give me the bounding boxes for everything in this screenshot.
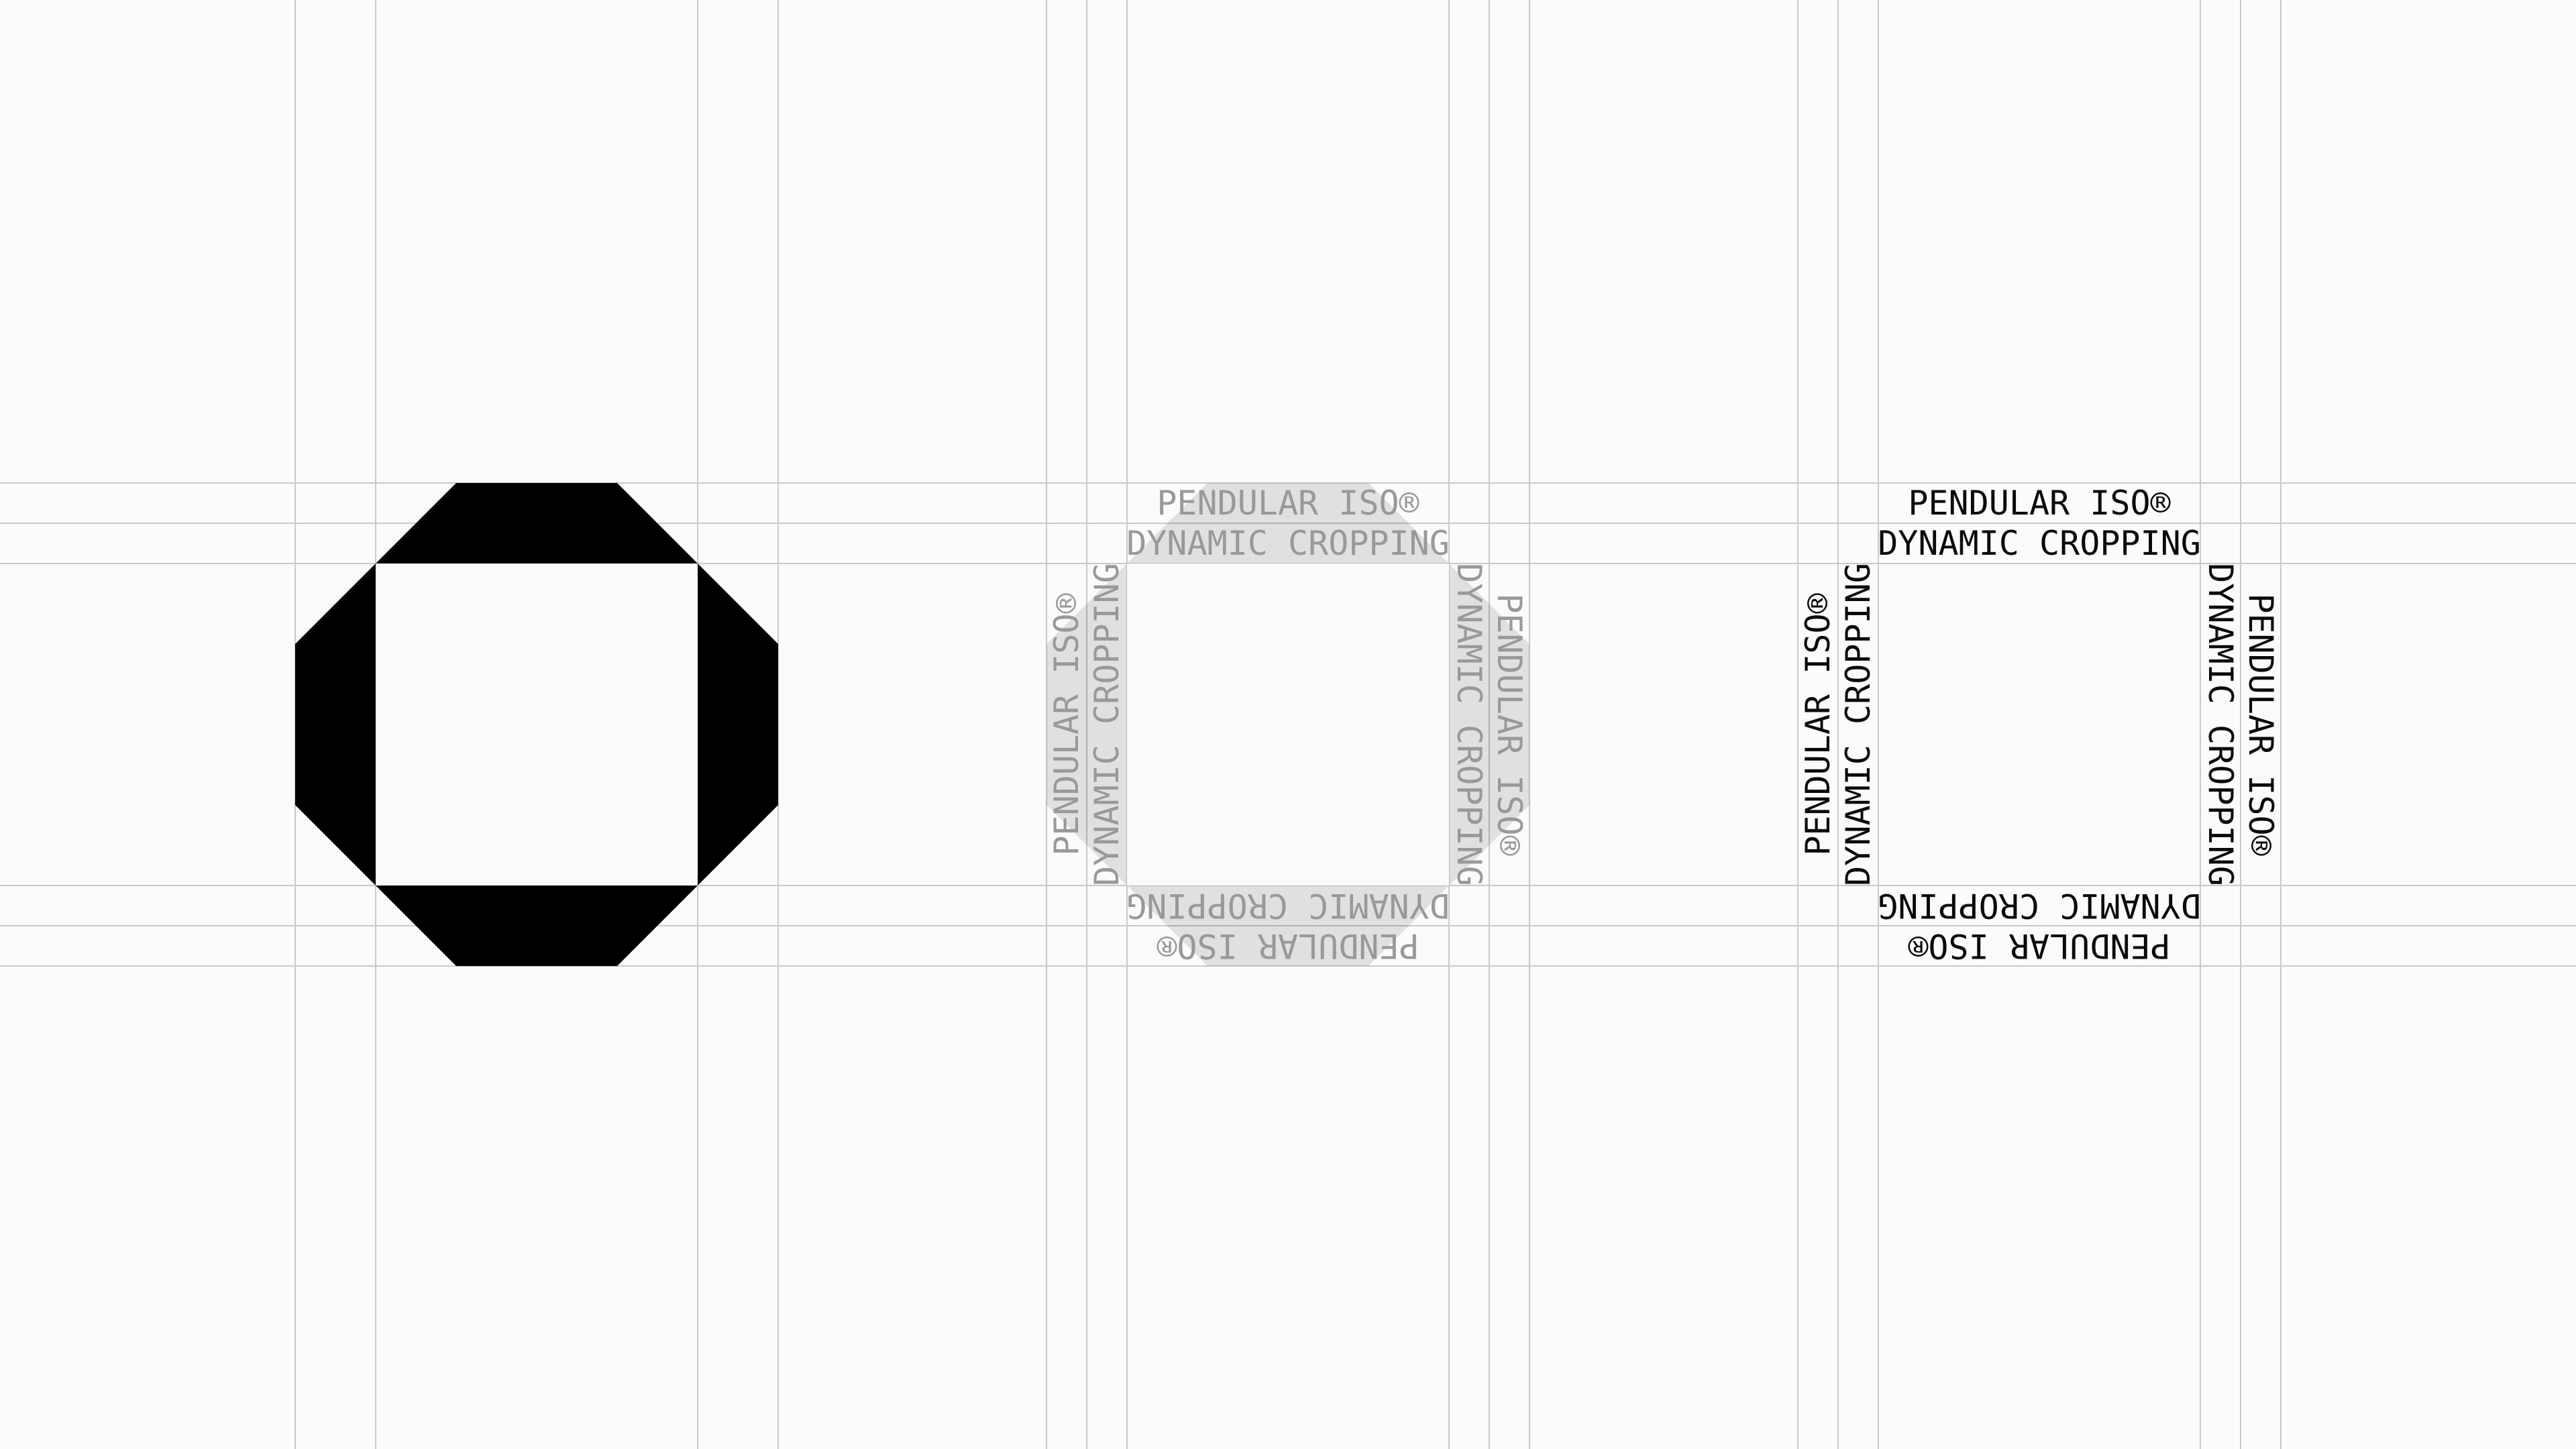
wordmark-left: PENDULAR ISO® xyxy=(1798,563,1838,885)
ghost-tagline-right: DYNAMIC CROPPING xyxy=(1449,563,1489,885)
ghost-tagline-bottom: DYNAMIC CROPPING xyxy=(1127,885,1449,926)
octagon-ghost-inner-square xyxy=(1127,563,1449,885)
ghost-wordmark-bottom: PENDULAR ISO® xyxy=(1127,926,1449,966)
wordmark-bottom: PENDULAR ISO® xyxy=(1878,926,2200,966)
wordmark-top: PENDULAR ISO® xyxy=(1878,483,2200,523)
ghost-tagline-left: DYNAMIC CROPPING xyxy=(1087,563,1127,885)
ghost-tagline-top: DYNAMIC CROPPING xyxy=(1127,523,1449,563)
cropping-grid-sheet: PENDULAR ISO® DYNAMIC CROPPING DYNAMIC C… xyxy=(0,0,2576,1449)
tagline-top: DYNAMIC CROPPING xyxy=(1878,523,2200,563)
ghost-wordmark-top: PENDULAR ISO® xyxy=(1127,483,1449,523)
tagline-right: DYNAMIC CROPPING xyxy=(2200,563,2241,885)
wordmark-right: PENDULAR ISO® xyxy=(2241,563,2281,885)
tagline-bottom: DYNAMIC CROPPING xyxy=(1878,885,2200,926)
ghost-wordmark-right: PENDULAR ISO® xyxy=(1489,563,1529,885)
octagon-logo-solid xyxy=(295,483,778,966)
tagline-left: DYNAMIC CROPPING xyxy=(1838,563,1878,885)
ghost-wordmark-left: PENDULAR ISO® xyxy=(1046,563,1087,885)
octagon-inner-square xyxy=(376,563,698,885)
